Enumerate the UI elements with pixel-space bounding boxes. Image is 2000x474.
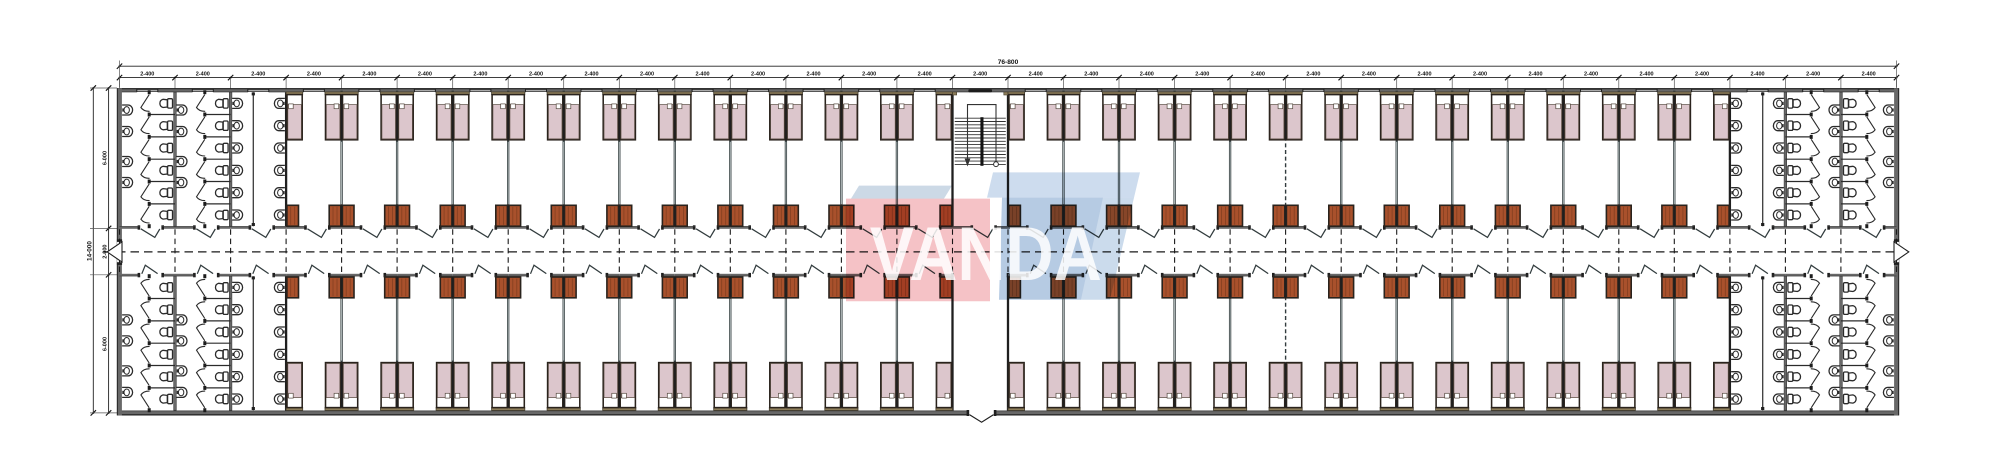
svg-text:2-400: 2-400 bbox=[140, 72, 154, 78]
svg-text:6-000: 6-000 bbox=[102, 337, 108, 351]
svg-text:2-400: 2-400 bbox=[418, 72, 432, 78]
svg-text:2-400: 2-400 bbox=[1195, 72, 1209, 78]
svg-text:2-400: 2-400 bbox=[751, 72, 765, 78]
svg-text:2-400: 2-400 bbox=[529, 72, 543, 78]
svg-text:2-400: 2-400 bbox=[1140, 72, 1154, 78]
svg-text:2-400: 2-400 bbox=[1251, 72, 1265, 78]
svg-text:2-400: 2-400 bbox=[807, 72, 821, 78]
svg-text:76-800: 76-800 bbox=[998, 59, 1019, 66]
svg-text:2-400: 2-400 bbox=[1862, 72, 1876, 78]
svg-text:14-000: 14-000 bbox=[86, 241, 93, 261]
svg-text:2-400: 2-400 bbox=[196, 72, 210, 78]
svg-text:2-400: 2-400 bbox=[1473, 72, 1487, 78]
svg-text:2-400: 2-400 bbox=[1417, 72, 1431, 78]
svg-text:2-400: 2-400 bbox=[1362, 72, 1376, 78]
svg-text:2-400: 2-400 bbox=[1751, 72, 1765, 78]
svg-text:2-400: 2-400 bbox=[640, 72, 654, 78]
svg-text:2-400: 2-400 bbox=[1806, 72, 1820, 78]
svg-text:2-400: 2-400 bbox=[251, 72, 265, 78]
svg-text:2-400: 2-400 bbox=[584, 72, 598, 78]
svg-text:2-400: 2-400 bbox=[973, 72, 987, 78]
svg-text:2-400: 2-400 bbox=[1584, 72, 1598, 78]
svg-text:2-400: 2-400 bbox=[473, 72, 487, 78]
svg-text:2-400: 2-400 bbox=[307, 72, 321, 78]
svg-text:2-400: 2-400 bbox=[918, 72, 932, 78]
svg-text:2-400: 2-400 bbox=[1029, 72, 1043, 78]
svg-text:2-400: 2-400 bbox=[1640, 72, 1654, 78]
svg-text:2-400: 2-400 bbox=[1695, 72, 1709, 78]
svg-text:2-400: 2-400 bbox=[1084, 72, 1098, 78]
svg-text:2-400: 2-400 bbox=[1528, 72, 1542, 78]
svg-text:6-000: 6-000 bbox=[102, 151, 108, 165]
svg-text:2-400: 2-400 bbox=[862, 72, 876, 78]
svg-text:2-400: 2-400 bbox=[1306, 72, 1320, 78]
svg-text:2-400: 2-400 bbox=[362, 72, 376, 78]
svg-text:VANDA: VANDA bbox=[870, 212, 1102, 297]
svg-text:2-400: 2-400 bbox=[696, 72, 710, 78]
